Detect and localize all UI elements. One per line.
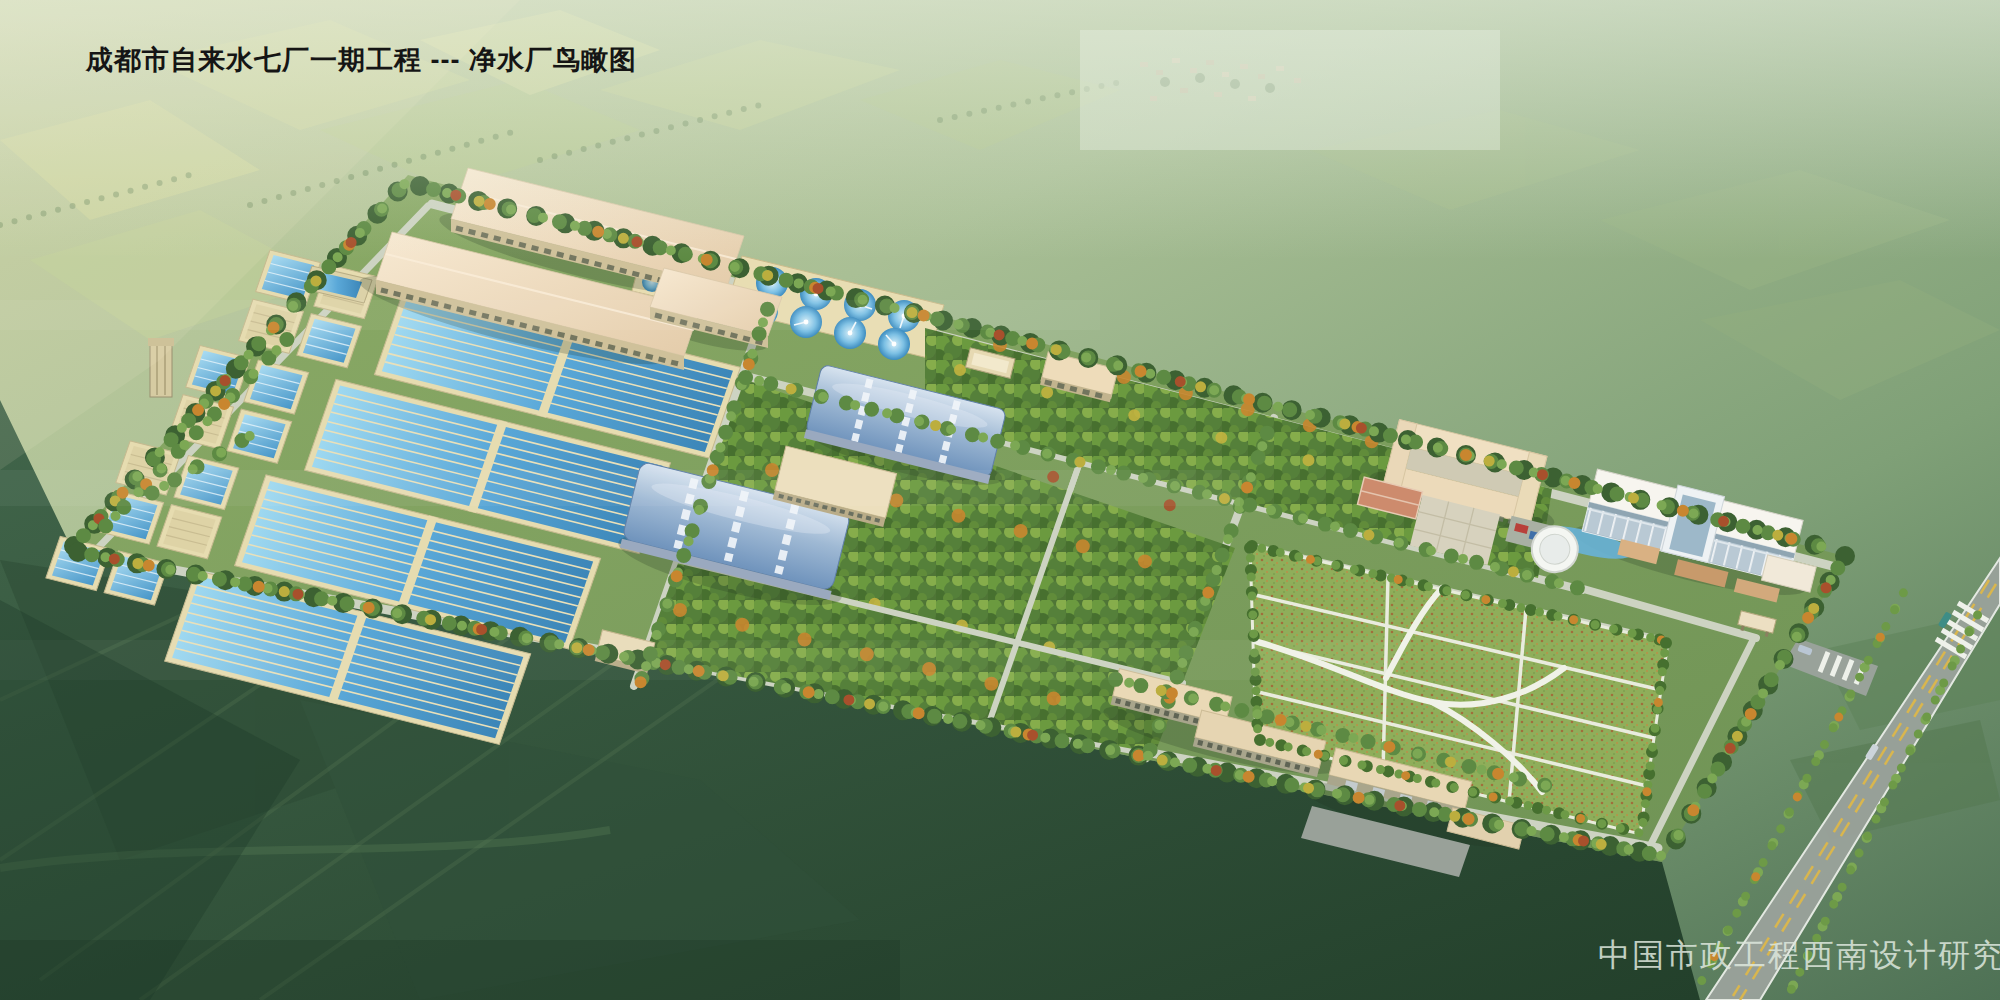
rendering-canvas: 成都市自来水七厂一期工程 --- 净水厂鸟瞰图 中国市政工程西南设计研究总院 xyxy=(0,0,2000,1000)
aerial-rendering xyxy=(0,0,2000,1000)
page-title: 成都市自来水七厂一期工程 --- 净水厂鸟瞰图 xyxy=(86,42,637,78)
credit-text: 中国市政工程西南设计研究总院 xyxy=(1598,934,2000,978)
